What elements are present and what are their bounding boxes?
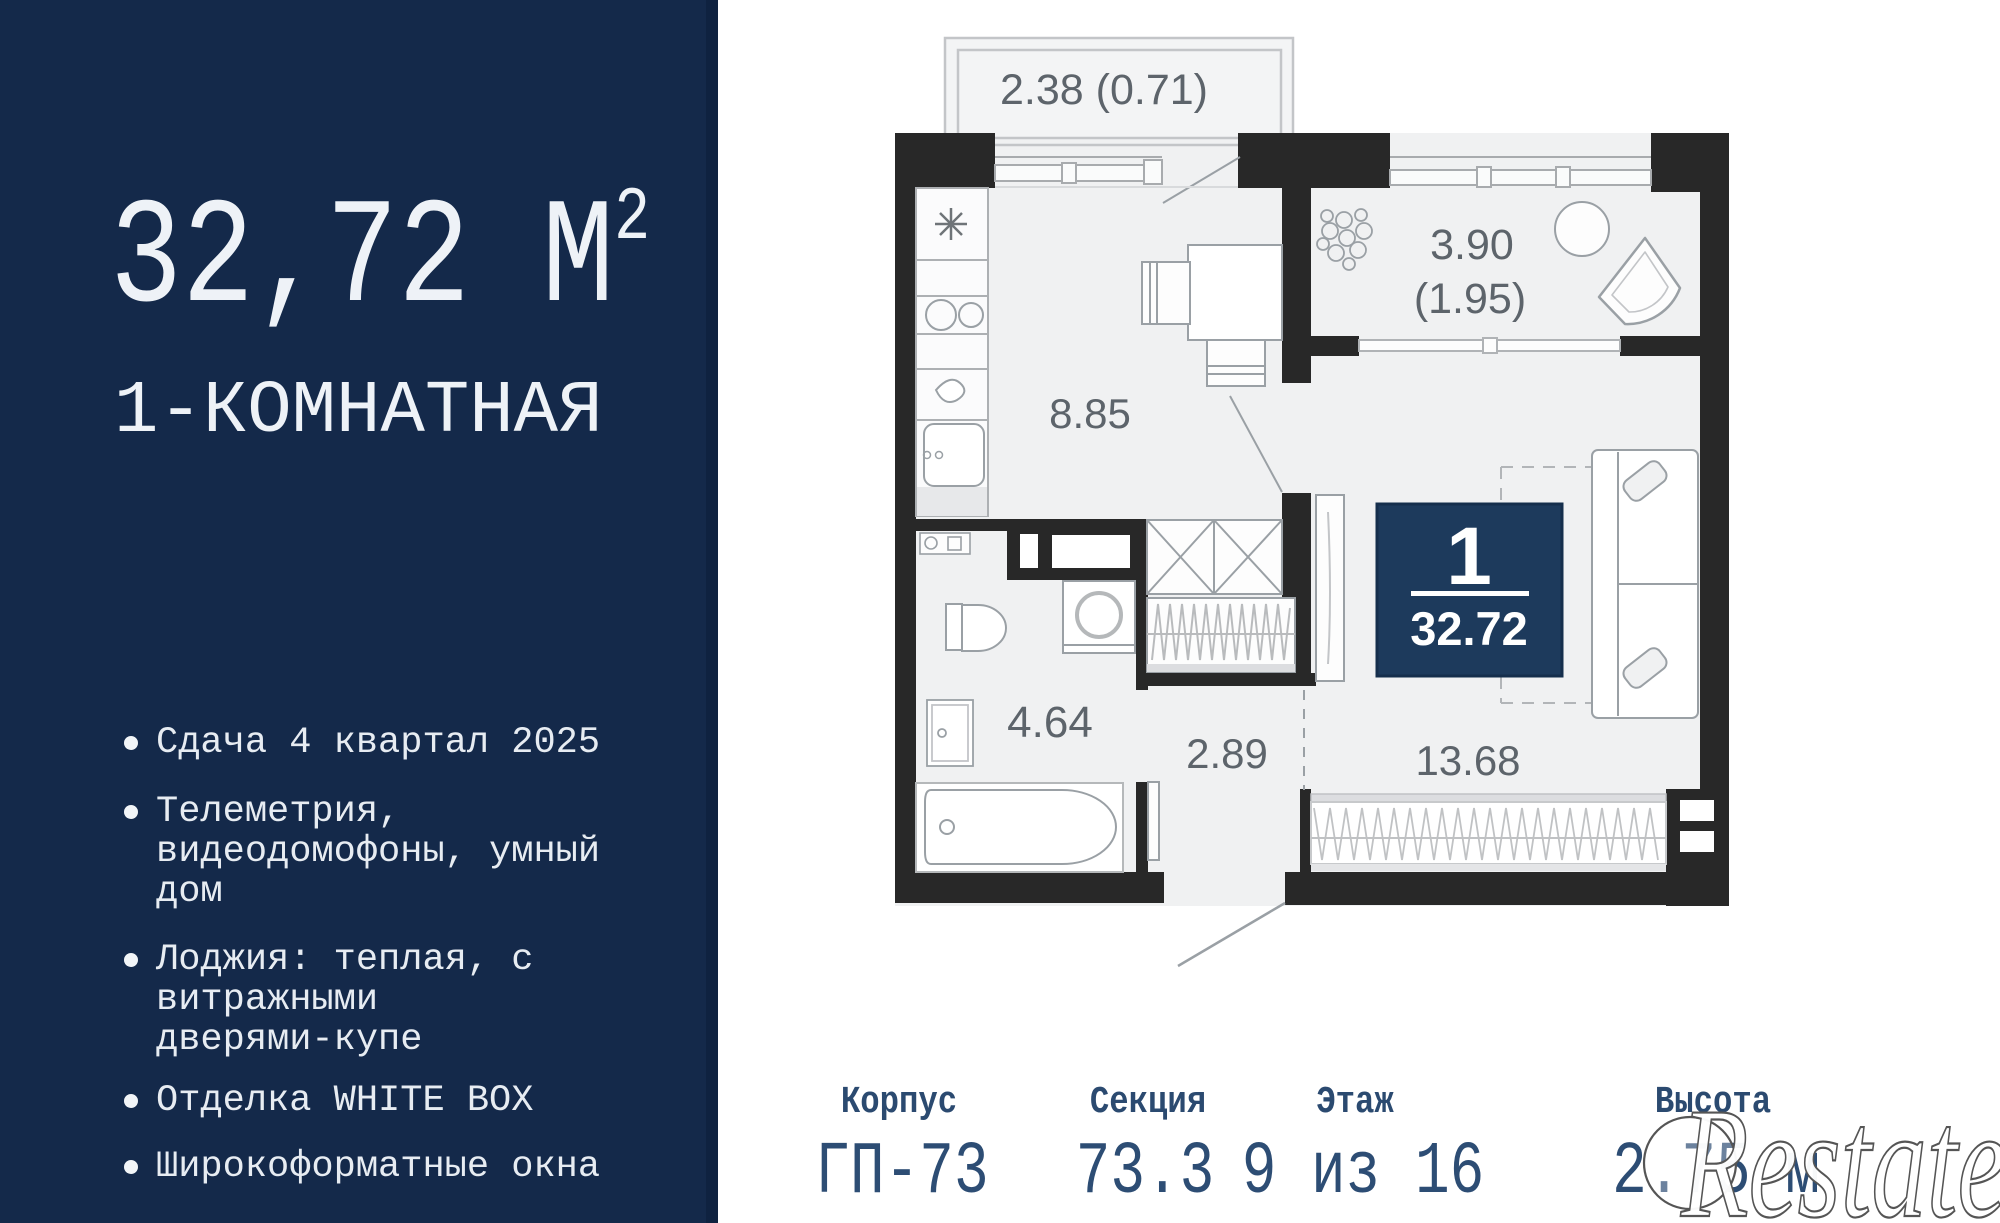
svg-text:8.85: 8.85 xyxy=(1049,390,1131,437)
svg-text:Restate: Restate xyxy=(1680,1076,2000,1223)
svg-text:13.68: 13.68 xyxy=(1415,737,1520,784)
svg-text:3.90: 3.90 xyxy=(1430,221,1514,269)
svg-text:Корпус: Корпус xyxy=(841,1081,957,1124)
svg-text:ГП-73: ГП-73 xyxy=(815,1131,988,1215)
svg-text:(1.95): (1.95) xyxy=(1414,275,1526,323)
svg-text:1: 1 xyxy=(1446,511,1492,602)
svg-text:4.64: 4.64 xyxy=(1007,698,1093,747)
svg-text:2.89: 2.89 xyxy=(1186,730,1268,777)
svg-text:2.38 (0.71): 2.38 (0.71) xyxy=(1000,66,1208,114)
svg-text:Этаж: Этаж xyxy=(1316,1081,1394,1124)
svg-text:Секция: Секция xyxy=(1090,1081,1206,1124)
svg-text:9 из 16: 9 из 16 xyxy=(1242,1131,1484,1215)
svg-text:32.72: 32.72 xyxy=(1410,602,1528,655)
svg-text:73.3: 73.3 xyxy=(1076,1131,1215,1215)
